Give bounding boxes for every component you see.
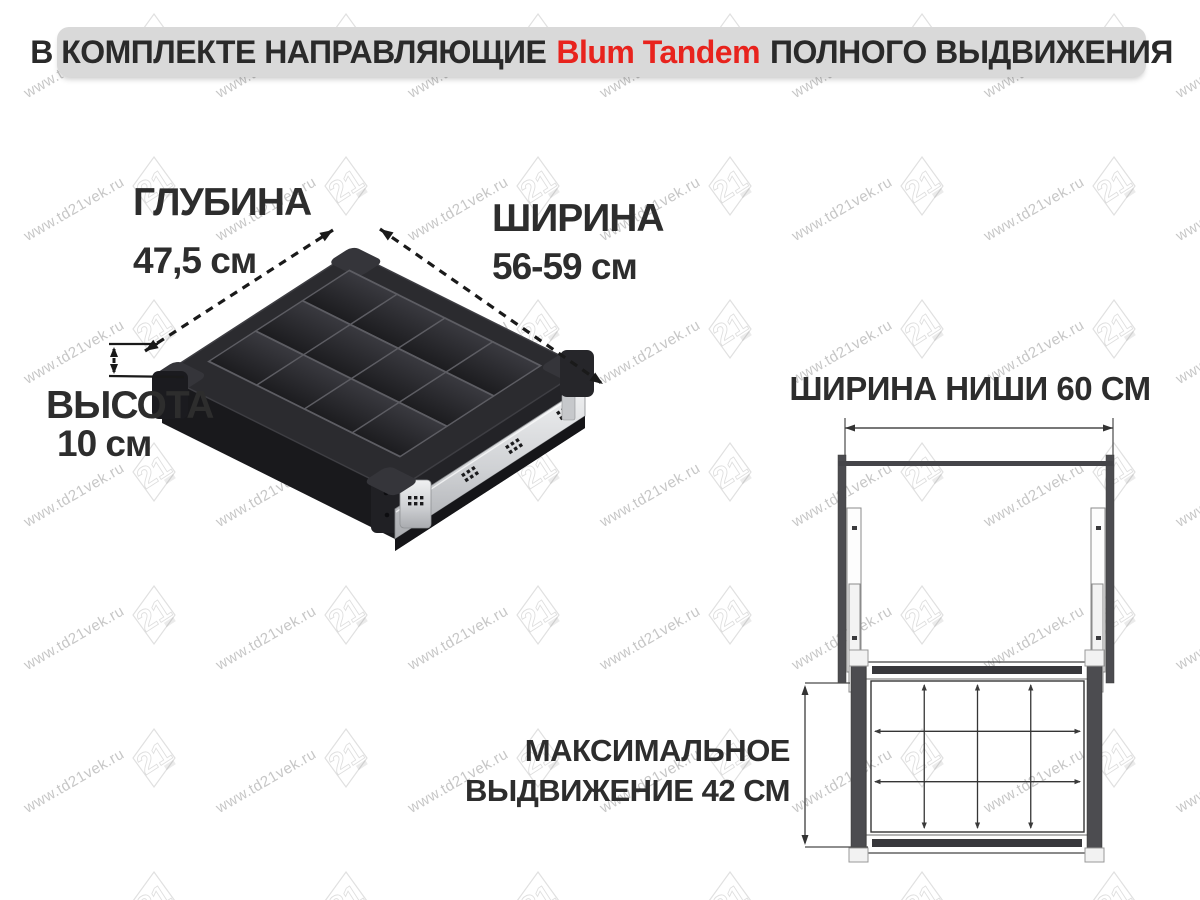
banner-text-before: В КОМПЛЕКТЕ НАПРАВЛЯЮЩИЕ xyxy=(30,34,546,71)
depth-value: 47,5 см xyxy=(133,240,256,282)
drawer-product-illustration xyxy=(151,246,595,551)
cabinet-back-rail xyxy=(838,461,1114,466)
max-extension-line1: МАКСИМАЛЬНОЕ xyxy=(400,731,790,771)
max-extension-label: МАКСИМАЛЬНОЕ ВЫДВИЖЕНИЕ 42 СМ xyxy=(400,731,790,811)
height-value: 10 см xyxy=(57,423,151,465)
page: www.td21vek.ruwww.td21vek.ruwww.td21vek.… xyxy=(0,0,1200,900)
max-extension-line2: ВЫДВИЖЕНИЕ 42 СМ xyxy=(400,771,790,811)
niche-width-label: ШИРИНА НИШИ 60 СМ xyxy=(780,370,1160,408)
drawer-topview-grid xyxy=(871,681,1084,832)
drawer-topview-front-bar xyxy=(872,839,1082,847)
drawer-topview-back-bar xyxy=(872,666,1082,674)
header-banner: В КОМПЛЕКТЕ НАПРАВЛЯЮЩИЕ Blum Tandem ПОЛ… xyxy=(57,27,1146,77)
technical-diagram xyxy=(802,418,1115,862)
banner-text-after: ПОЛНОГО ВЫДВИЖЕНИЯ xyxy=(770,34,1173,71)
cabinet-right-panel xyxy=(1106,455,1114,683)
width-value: 56-59 см xyxy=(492,246,637,288)
cabinet-left-panel xyxy=(838,455,846,683)
width-label: ШИРИНА xyxy=(492,197,664,241)
brand-name: Blum Tandem xyxy=(556,34,760,71)
drawer-topview-left-bar xyxy=(851,664,866,854)
depth-label: ГЛУБИНА xyxy=(133,181,311,225)
niche-dimension xyxy=(845,418,1113,462)
height-label: ВЫСОТА xyxy=(46,384,213,428)
telescopic-slides xyxy=(847,508,1105,692)
height-bracket-bottom xyxy=(109,376,184,377)
drawer-topview-right-bar xyxy=(1087,664,1102,854)
